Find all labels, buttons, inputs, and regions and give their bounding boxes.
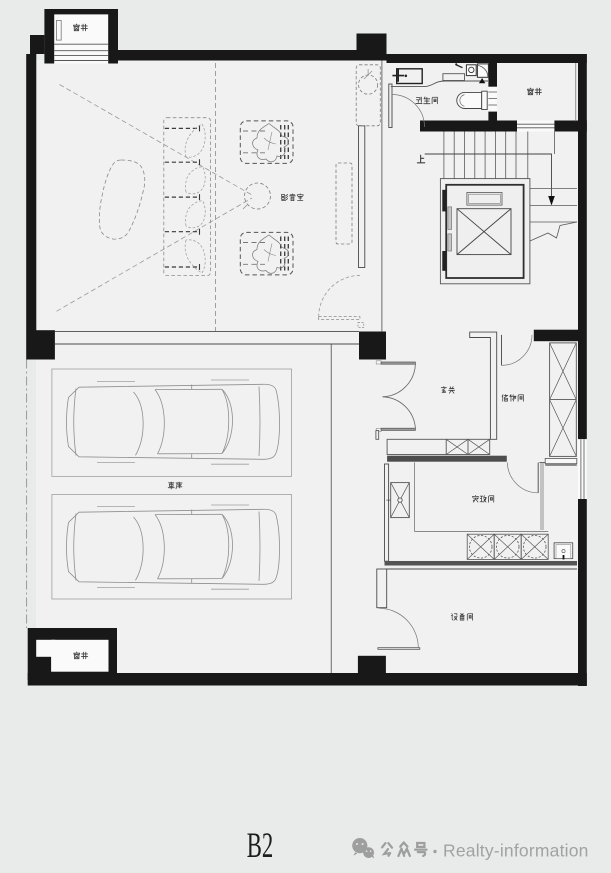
svg-text:B2: B2: [247, 825, 274, 865]
svg-text:Realty-information: Realty-information: [443, 841, 589, 861]
